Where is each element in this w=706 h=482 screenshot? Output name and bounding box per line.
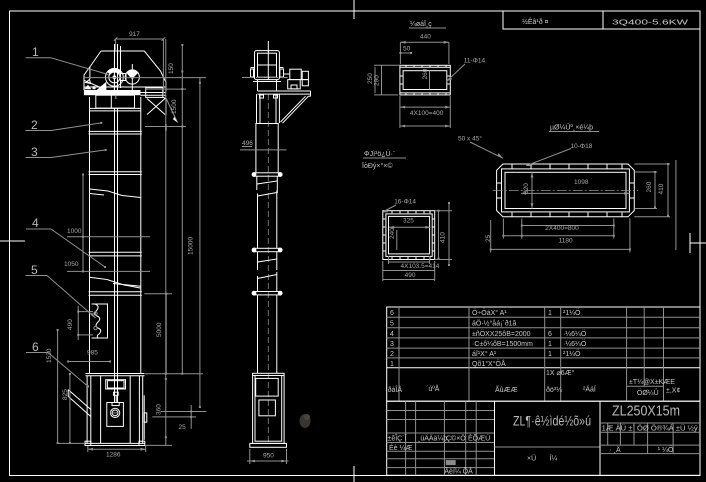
svg-text:490: 490 — [405, 272, 416, 279]
svg-text:1Æ ÄÜ ±ˋ ÖØ Ö®¾Á ±Ü ½ý: 1Æ ÄÜ ±ˋ ÖØ Ö®¾Á ±Ü ½ý — [602, 424, 699, 433]
svg-text:6: 6 — [32, 340, 39, 354]
svg-text:áî¹X° A¹: áî¹X° A¹ — [472, 350, 497, 358]
svg-text:6: 6 — [548, 331, 552, 338]
svg-text:11-Φ14: 11-Φ14 — [464, 58, 486, 65]
svg-text:·C±ô¼ôB=1500mm: ·C±ô¼ôB=1500mm — [472, 341, 533, 348]
svg-text:1530: 1530 — [46, 348, 53, 363]
svg-text:1: 1 — [548, 351, 552, 358]
svg-text:½Êâ¹ð ¤: ½Êâ¹ð ¤ — [522, 17, 549, 26]
svg-text:±êÎÇ´Î: ±êÎÇ´Î — [388, 434, 408, 443]
svg-text:320: 320 — [523, 183, 530, 194]
svg-text:410: 410 — [658, 183, 665, 194]
svg-text:50 x 45°: 50 x 45° — [458, 135, 482, 143]
svg-text:825: 825 — [62, 389, 69, 400]
svg-text:240: 240 — [389, 228, 396, 239]
svg-text:4X100=400: 4X100=400 — [410, 110, 444, 117]
svg-text:´úºÅ: ´úºÅ — [426, 384, 440, 393]
svg-text:Qõ1°X°ÖÅ: Qõ1°X°ÖÅ — [472, 359, 506, 368]
svg-text:6: 6 — [390, 310, 394, 317]
svg-text:4: 4 — [390, 331, 394, 338]
svg-text:ZL¶·ê½ìdé½õ»ú: ZL¶·ê½ìdé½õ»ú — [513, 414, 591, 429]
svg-text:50: 50 — [403, 46, 411, 53]
svg-text:±T¼@X±KÆE: ±T¼@X±KÆE — [629, 379, 675, 386]
svg-text:260: 260 — [646, 181, 653, 192]
svg-text:ÃèÍ¼ ÕÅ: ÃèÍ¼ ÕÅ — [444, 466, 473, 475]
svg-text:ÏòÐý×°×©: ÏòÐý×°×© — [362, 162, 393, 170]
svg-text:áÖ·½°åá¡´ð1â: áÖ·½°åá¡´ð1â — [472, 320, 517, 328]
svg-text:10-Φ18: 10-Φ18 — [571, 143, 593, 150]
svg-text:×Ü: ×Ü — [527, 455, 536, 463]
svg-text:2X400=800: 2X400=800 — [545, 225, 579, 232]
svg-text:1180: 1180 — [559, 238, 573, 245]
svg-text:490: 490 — [67, 319, 74, 330]
svg-text:ΦJì³ö¿Ú·¨: ΦJì³ö¿Ú·¨ — [364, 149, 396, 158]
svg-text:ðö³¼: ðö³¼ — [546, 386, 562, 394]
svg-text:410: 410 — [440, 232, 447, 243]
svg-text:1500: 1500 — [171, 99, 178, 114]
svg-text:ÖØ¼Û: ÖØ¼Û — [637, 388, 659, 397]
svg-text:²1¼Ö: ²1¼Ö — [563, 309, 581, 317]
svg-text:4: 4 — [32, 216, 39, 230]
svg-text:Ç©×Ö: Ç©×Ö — [446, 435, 466, 443]
svg-text:3Q400-5.6KW: 3Q400-5.6KW — [612, 20, 689, 27]
svg-text:15000: 15000 — [188, 237, 195, 255]
svg-text:¸üÄÄä¼þ: ¸üÄÄä¼þ — [418, 435, 447, 443]
svg-text:1: 1 — [548, 310, 552, 317]
svg-text:²1¼Ö: ²1¼Ö — [563, 350, 581, 358]
svg-text:ÃûÆÆ: ÃûÆÆ — [495, 385, 518, 394]
svg-text:1098: 1098 — [574, 179, 589, 186]
svg-text:ðáÎÅ: ðáÎÅ — [388, 385, 403, 394]
svg-text:16-Φ14: 16-Φ14 — [394, 199, 416, 206]
svg-text:5: 5 — [390, 321, 394, 328]
svg-text:¼øáÏ¸ç: ¼øáÏ¸ç — [410, 20, 432, 28]
svg-text:1: 1 — [548, 341, 552, 348]
svg-text:440: 440 — [420, 34, 431, 41]
svg-text:260: 260 — [422, 68, 429, 79]
svg-text:360: 360 — [156, 404, 163, 415]
svg-text:5000: 5000 — [156, 322, 163, 337]
svg-text:Ö÷ÖáX° A¹: Ö÷ÖáX° A¹ — [472, 309, 507, 317]
svg-text:ÈÕÆÚ: ÈÕÆÚ — [468, 434, 490, 443]
svg-text:325: 325 — [403, 218, 414, 225]
svg-text:±ñÖXX25ôB=2000: ±ñÖXX25ôB=2000 — [472, 330, 531, 338]
svg-text:917: 917 — [129, 31, 140, 38]
svg-text:Í¼: Í¼ — [550, 454, 558, 463]
svg-text:250: 250 — [367, 73, 374, 84]
svg-text:±,X¢: ±,X¢ — [666, 388, 680, 395]
svg-text:1050: 1050 — [64, 261, 79, 268]
svg-text:·¼6¼Ö: ·¼6¼Ö — [563, 340, 587, 348]
svg-text:25: 25 — [179, 424, 187, 431]
svg-text:· ¸Ä: · ¸Ä — [609, 446, 621, 454]
svg-text:3: 3 — [31, 145, 38, 159]
svg-text:Éè ¼Æ: Éè ¼Æ — [389, 443, 412, 452]
svg-text:1: 1 — [390, 361, 394, 368]
svg-text:3: 3 — [390, 341, 394, 348]
svg-text:ZL250X15m: ZL250X15m — [612, 404, 680, 420]
svg-text:950: 950 — [263, 453, 274, 460]
svg-text:1X ⌀6Æ°: 1X ⌀6Æ° — [546, 369, 575, 377]
svg-text:150: 150 — [168, 63, 175, 74]
svg-text:2: 2 — [31, 118, 38, 132]
svg-text:5: 5 — [31, 263, 38, 277]
svg-text:1286: 1286 — [106, 452, 121, 459]
svg-text:1000: 1000 — [67, 228, 82, 235]
svg-text:µØ¼Üº¸×é¼þ: µØ¼Üº¸×é¼þ — [550, 124, 593, 132]
svg-text:²ÄáÏ: ²ÄáÏ — [583, 386, 596, 394]
svg-text:¹ ¼Ö: ¹ ¼Ö — [658, 446, 674, 454]
svg-text:985: 985 — [87, 350, 98, 357]
svg-text:4X103.5=414: 4X103.5=414 — [401, 263, 440, 270]
svg-text:2: 2 — [390, 351, 394, 358]
svg-text:496: 496 — [242, 140, 253, 147]
svg-text:·¼6¼Ö: ·¼6¼Ö — [563, 330, 587, 338]
svg-text:1: 1 — [32, 45, 39, 59]
